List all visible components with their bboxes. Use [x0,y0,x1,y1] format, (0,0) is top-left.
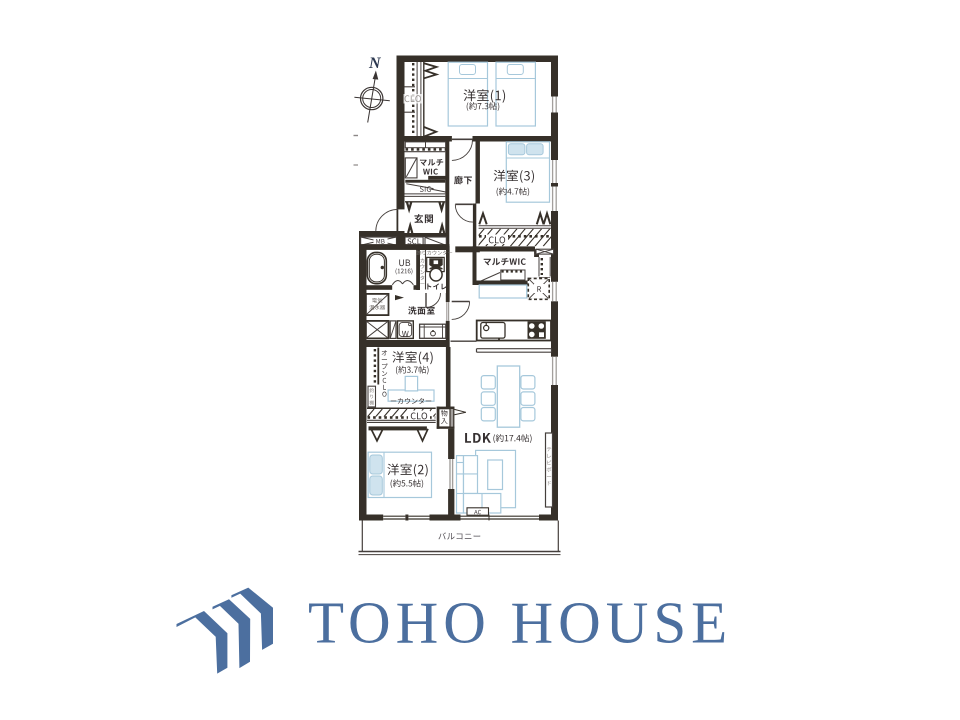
svg-text:TOHO HOUSE: TOHO HOUSE [308,590,732,656]
svg-text:N: N [368,55,382,72]
